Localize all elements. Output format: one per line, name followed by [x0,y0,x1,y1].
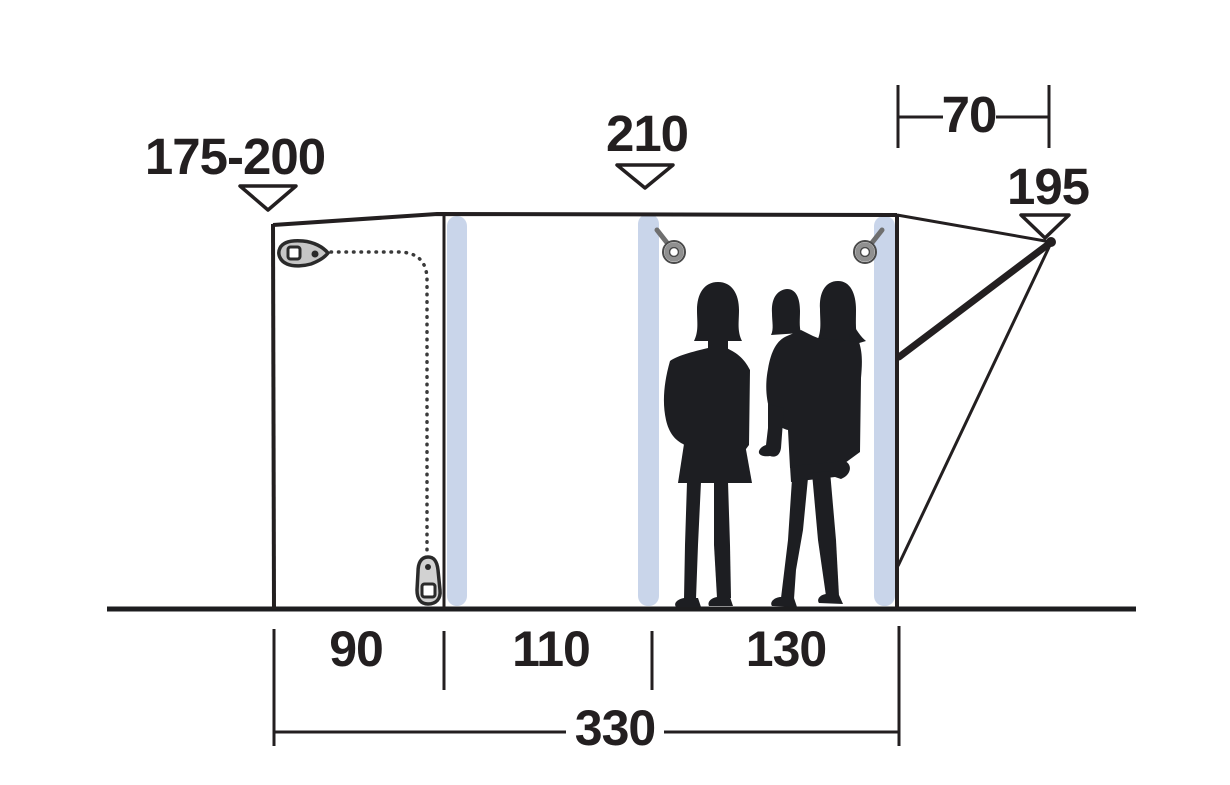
triangle-down-arrow-icon [240,186,296,210]
dim-bottom-sections: 90 110 130 330 [274,621,899,756]
dim-rear-height: 195 [1007,158,1089,238]
dim-rear-offset-label: 70 [942,86,997,143]
guy-pole-thick [899,243,1050,357]
dim-section-2-label: 110 [512,621,590,677]
dim-section-1-label: 90 [329,621,383,677]
dim-rear-height-label: 195 [1007,158,1089,215]
family-silhouette [664,281,866,607]
dim-section-3-label: 130 [746,621,826,677]
dim-front-height-label: 175-200 [145,128,325,185]
diagram-canvas: 175-200 210 70 195 90 110 130 330 [0,0,1230,785]
zipper-pull-top-icon [279,241,328,266]
dim-total-length-label: 330 [575,700,655,756]
triangle-down-arrow-icon [1021,215,1069,238]
tent-dimension-diagram: 175-200 210 70 195 90 110 130 330 [0,0,1230,785]
air-pole-rear [874,216,895,606]
air-pole-front [447,216,467,606]
dim-center-height: 210 [606,105,688,188]
triangle-down-arrow-icon [617,165,673,188]
dim-rear-offset: 70 [898,85,1049,148]
dim-front-height: 175-200 [145,128,325,210]
front-wall [273,224,274,609]
zipper-pull-bottom-icon [417,557,440,604]
tent-outline [273,214,1051,609]
toggle-ring-left-icon [657,230,685,263]
guy-anchor-point [1046,237,1056,247]
roof-edge [273,214,897,225]
dim-center-height-label: 210 [606,105,688,162]
zipper-track-dotted [331,252,427,551]
guy-line-thin [898,243,1051,566]
air-pole-middle [638,214,659,606]
